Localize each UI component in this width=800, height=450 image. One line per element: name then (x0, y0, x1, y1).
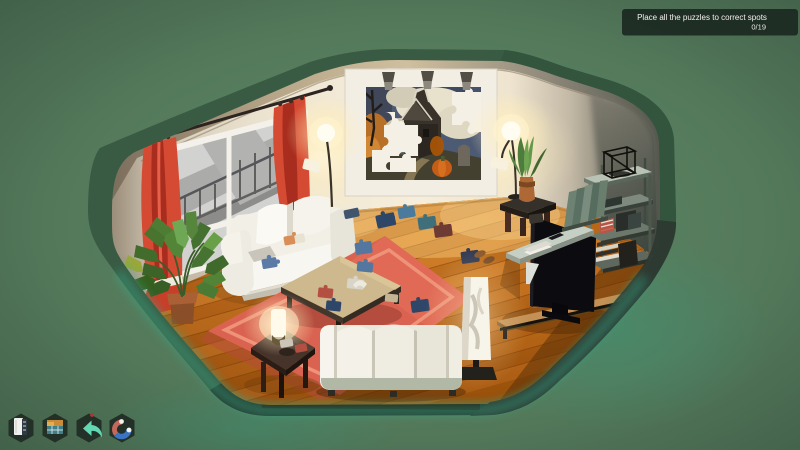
svg-text:Place all the puzzles to corre: Place all the puzzles to correct spots (637, 13, 767, 22)
svg-text:0/19: 0/19 (751, 23, 766, 32)
